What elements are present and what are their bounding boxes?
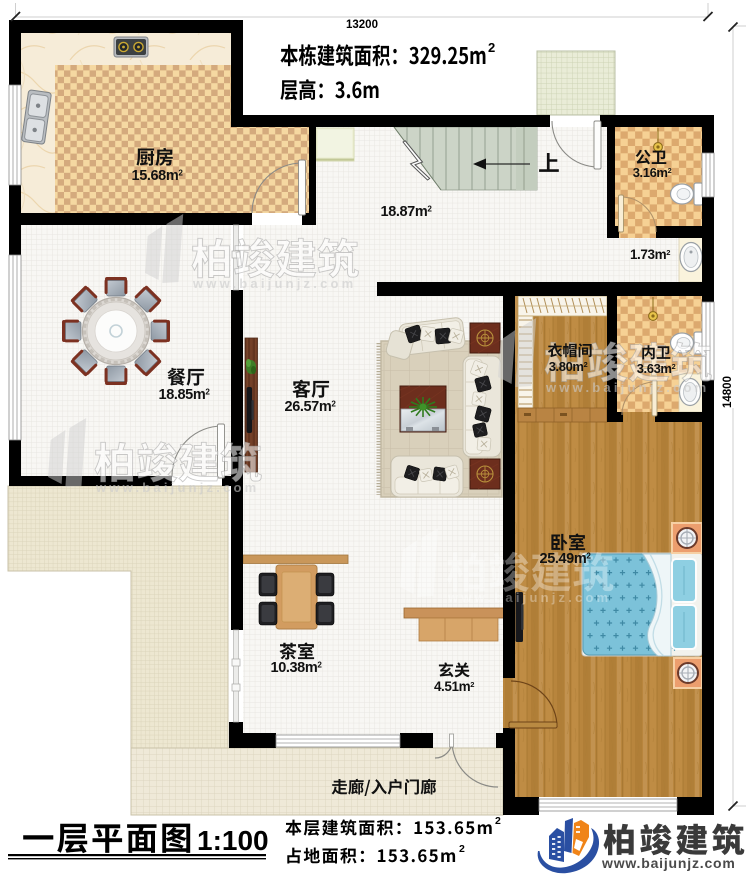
svg-text:18.87m2: 18.87m2 — [381, 204, 433, 220]
svg-text:2: 2 — [495, 815, 501, 827]
svg-text:2: 2 — [459, 843, 465, 855]
svg-text:3.63m2: 3.63m2 — [637, 361, 676, 376]
svg-text:www.baijunjz.com: www.baijunjz.com — [601, 855, 736, 871]
svg-text:www.baijunjz.com: www.baijunjz.com — [545, 380, 709, 395]
svg-text:26.57m2: 26.57m2 — [285, 399, 337, 415]
svg-text:10.38m2: 10.38m2 — [271, 660, 323, 676]
svg-text:25.49m2: 25.49m2 — [540, 551, 592, 567]
svg-text:2: 2 — [488, 40, 495, 55]
svg-text:1:100: 1:100 — [197, 825, 269, 856]
svg-text:www.baijunjz.com: www.baijunjz.com — [447, 590, 611, 605]
svg-text:4.51m2: 4.51m2 — [434, 679, 474, 694]
svg-text:www.baijunjz.com: www.baijunjz.com — [95, 480, 259, 495]
svg-text:14800: 14800 — [722, 376, 734, 408]
svg-text:13200: 13200 — [346, 19, 378, 31]
svg-text:15.68m2: 15.68m2 — [132, 168, 184, 184]
svg-text:1.73m2: 1.73m2 — [630, 247, 670, 262]
svg-text:www.baijunjz.com: www.baijunjz.com — [192, 276, 356, 291]
svg-text:3.16m2: 3.16m2 — [633, 165, 672, 180]
svg-text:18.85m2: 18.85m2 — [159, 387, 211, 403]
svg-text:3.80m2: 3.80m2 — [549, 359, 588, 374]
